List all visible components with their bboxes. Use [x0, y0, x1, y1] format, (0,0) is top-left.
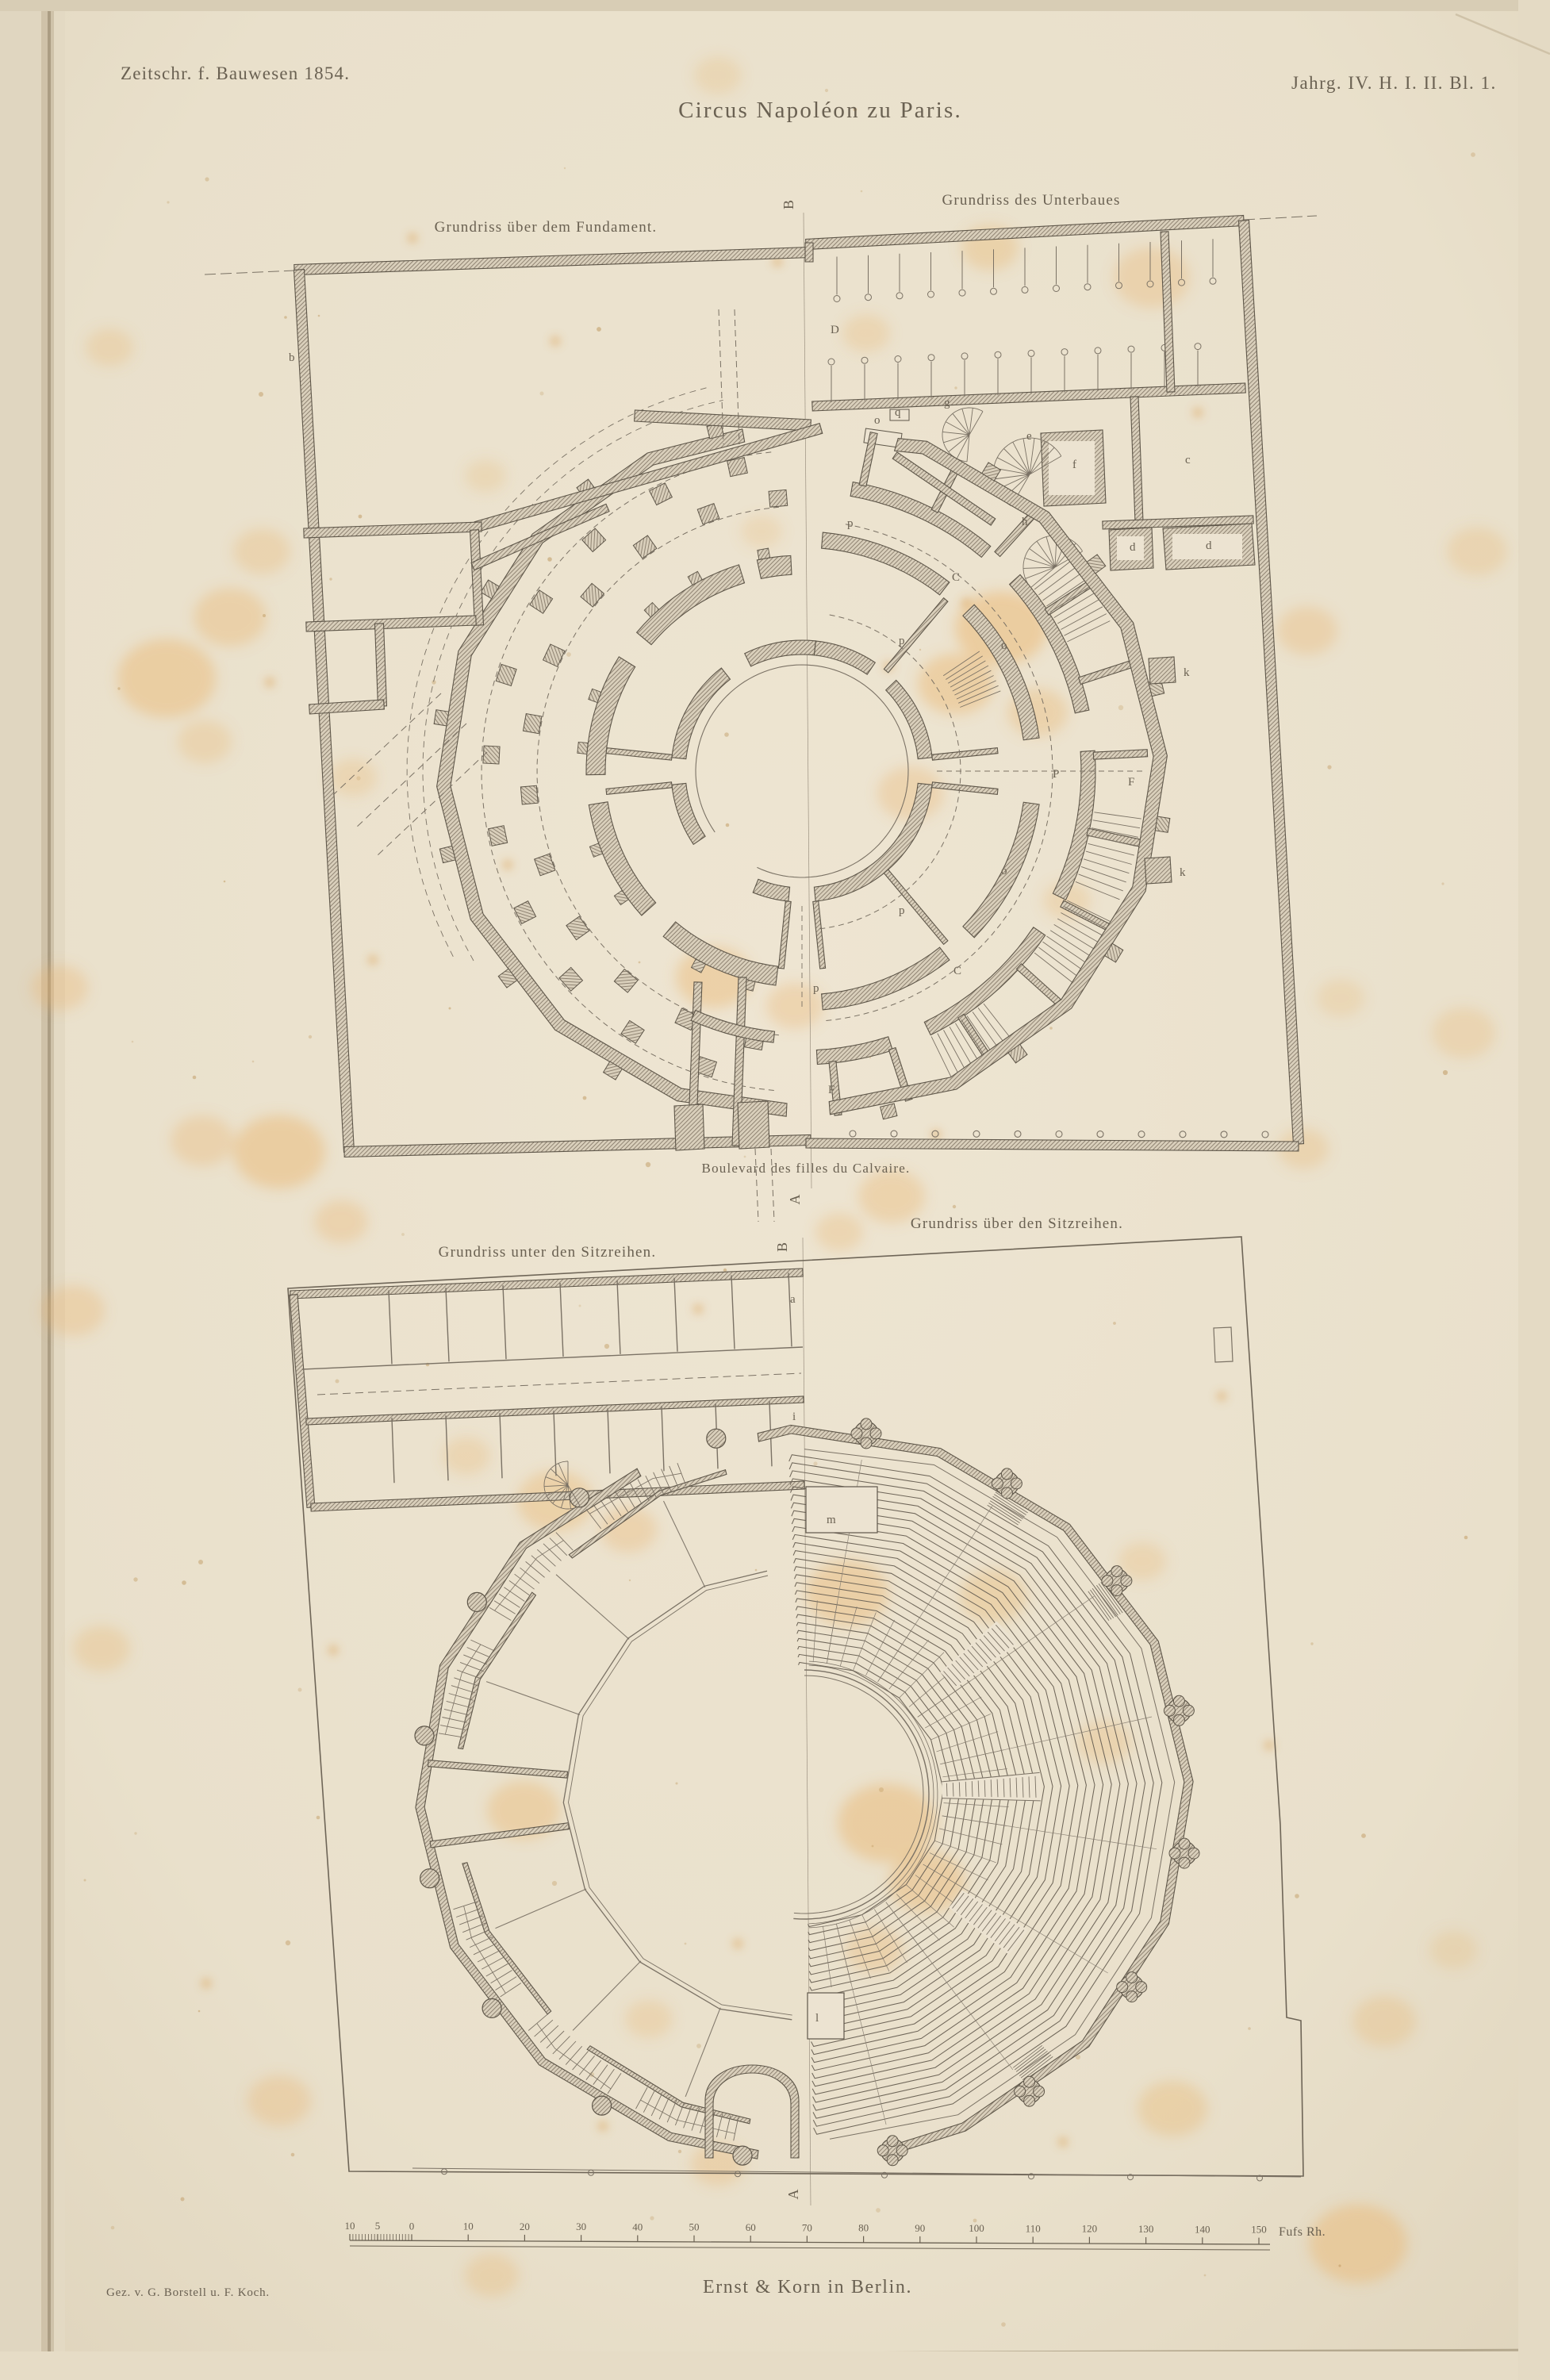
svg-text:120: 120	[1082, 2223, 1098, 2235]
svg-text:Grundriss des Unterbaues: Grundriss des Unterbaues	[942, 192, 1120, 209]
svg-text:90: 90	[915, 2222, 925, 2234]
svg-text:80: 80	[858, 2222, 869, 2234]
svg-text:D: D	[831, 324, 839, 336]
svg-text:130: 130	[1138, 2223, 1154, 2235]
svg-text:150: 150	[1251, 2224, 1267, 2236]
svg-text:0: 0	[409, 2220, 415, 2232]
svg-text:e: e	[1026, 430, 1032, 443]
svg-text:Fufs Rh.: Fufs Rh.	[1279, 2225, 1326, 2239]
svg-text:l: l	[815, 2012, 819, 2025]
svg-text:m: m	[827, 1514, 836, 1526]
svg-text:F: F	[828, 1084, 834, 1096]
svg-text:Grundriss über dem Fundament.: Grundriss über dem Fundament.	[435, 219, 658, 236]
svg-text:40: 40	[632, 2221, 643, 2232]
svg-text:o: o	[1001, 865, 1007, 877]
svg-text:a: a	[790, 1293, 796, 1306]
svg-text:60: 60	[746, 2221, 756, 2233]
svg-text:110: 110	[1026, 2222, 1041, 2234]
svg-text:P: P	[1053, 768, 1059, 781]
svg-text:B: B	[781, 200, 796, 209]
svg-text:Boulevard des filles du Calvai: Boulevard des filles du Calvaire.	[702, 1161, 911, 1176]
svg-text:p: p	[813, 982, 819, 995]
svg-text:Zeitschr. f. Bauwesen 1854.: Zeitschr. f. Bauwesen 1854.	[121, 63, 350, 83]
svg-text:30: 30	[576, 2221, 586, 2232]
svg-text:C: C	[953, 965, 961, 977]
svg-text:o: o	[1001, 639, 1007, 652]
svg-text:F: F	[1128, 776, 1134, 789]
svg-text:o: o	[874, 414, 881, 427]
svg-text:20: 20	[520, 2221, 530, 2232]
svg-text:d: d	[1130, 541, 1136, 554]
svg-text:g: g	[944, 397, 950, 409]
svg-text:f: f	[1072, 459, 1076, 471]
svg-text:A: A	[785, 2190, 801, 2200]
svg-text:q: q	[895, 406, 901, 419]
svg-text:10: 10	[463, 2221, 474, 2232]
svg-text:p: p	[899, 635, 905, 647]
svg-text:p: p	[899, 904, 905, 917]
svg-text:Jahrg. IV. H. I. II. Bl. 1.: Jahrg. IV. H. I. II. Bl. 1.	[1291, 73, 1497, 93]
svg-text:c: c	[1185, 454, 1191, 466]
svg-text:140: 140	[1195, 2223, 1210, 2235]
svg-text:d: d	[1206, 539, 1212, 552]
svg-text:B: B	[774, 1242, 790, 1252]
svg-text:70: 70	[802, 2221, 812, 2233]
svg-text:h: h	[1022, 516, 1028, 528]
svg-text:5: 5	[375, 2220, 381, 2232]
svg-text:k: k	[1184, 666, 1190, 679]
svg-text:Ernst & Korn in Berlin.: Ernst & Korn in Berlin.	[703, 2277, 912, 2297]
svg-text:Grundriss unter den Sitzreihen: Grundriss unter den Sitzreihen.	[439, 1244, 657, 1261]
svg-text:10: 10	[345, 2220, 355, 2232]
svg-text:p: p	[847, 517, 854, 530]
svg-text:50: 50	[689, 2221, 700, 2233]
svg-text:Gez. v. G. Borstell u. F. Koch: Gez. v. G. Borstell u. F. Koch.	[106, 2286, 270, 2299]
svg-text:C: C	[952, 571, 960, 584]
svg-text:b: b	[289, 351, 295, 364]
svg-text:k: k	[1180, 866, 1186, 879]
svg-text:A: A	[787, 1195, 803, 1205]
svg-text:100: 100	[969, 2222, 984, 2234]
svg-text:i: i	[792, 1411, 796, 1423]
svg-text:Circus Napoléon zu Paris.: Circus Napoléon zu Paris.	[678, 98, 962, 123]
svg-text:Grundriss über den Sitzreihen.: Grundriss über den Sitzreihen.	[911, 1215, 1123, 1232]
